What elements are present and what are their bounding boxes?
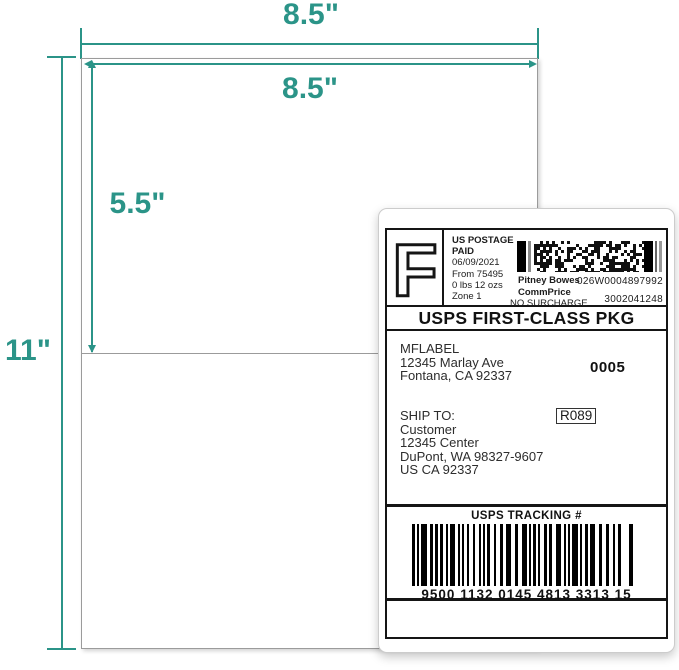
sheet-width-dimension-label: 8.5" xyxy=(256,0,366,30)
label-width-dimension-line xyxy=(86,63,533,65)
route-code-badge: R089 xyxy=(556,408,596,424)
sheet-width-right-tick xyxy=(537,28,539,59)
tracking-header: USPS TRACKING # xyxy=(387,510,666,522)
shipping-label-frame: F US POSTAGE PAID 06/09/2021 From 75495 … xyxy=(385,228,668,639)
carrier-name: Pitney Bowes xyxy=(518,275,580,286)
label-height-dimension-line xyxy=(91,62,93,352)
postage-weight: 0 lbs 12 ozs xyxy=(452,280,514,291)
ship-to-label: SHIP TO: xyxy=(400,409,543,423)
postage-line1: US POSTAGE xyxy=(452,235,514,246)
label-height-arrowhead-up xyxy=(88,60,96,68)
postage-class-box: F xyxy=(387,230,444,305)
sender-name: MFLABEL xyxy=(400,342,512,356)
recipient-address2: DuPont, WA 98327-9607 xyxy=(400,450,543,464)
sheet-height-dimension-label: 11" xyxy=(2,336,54,366)
meter-number: 026W0004897992 xyxy=(577,276,663,287)
account-number: 3002041248 xyxy=(604,294,663,305)
sender-address: MFLABEL 12345 Marlay Ave Fontana, CA 923… xyxy=(400,342,512,383)
postage-date: 06/09/2021 xyxy=(452,257,514,268)
sender-address1: 12345 Marlay Ave xyxy=(400,356,512,370)
postage-origin: From 75495 xyxy=(452,269,514,280)
sheet-width-left-tick xyxy=(80,28,82,59)
surcharge-note: NO SURCHARGE xyxy=(510,298,588,309)
tracking-section: USPS TRACKING # 9500 1132 0145 4813 3313… xyxy=(387,504,666,601)
sender-address2: Fontana, CA 92337 xyxy=(400,369,512,383)
postage-class-letter: F xyxy=(392,234,437,302)
label-footer-blank xyxy=(387,601,666,637)
postage-zone: Zone 1 xyxy=(452,291,514,302)
batch-number: 0005 xyxy=(590,361,625,375)
label-width-arrowhead-right xyxy=(529,60,537,68)
service-class-banner: USPS FIRST-CLASS PKG xyxy=(387,307,666,331)
meter-barcode xyxy=(517,241,664,272)
postage-details: US POSTAGE PAID 06/09/2021 From 75495 0 … xyxy=(452,235,514,302)
label-width-dimension-label: 8.5" xyxy=(250,74,370,104)
postage-class-letter-icon: F xyxy=(390,234,440,302)
postage-line2: PAID xyxy=(452,246,514,257)
recipient-address1: 12345 Center xyxy=(400,436,543,450)
product-image-canvas: 8.5" 11" 8.5" 5.5" F xyxy=(0,0,679,670)
recipient-name: Customer xyxy=(400,423,543,437)
tracking-barcode xyxy=(412,524,633,586)
sheet-width-dimension-line xyxy=(81,43,539,45)
shipping-label-card: F US POSTAGE PAID 06/09/2021 From 75495 … xyxy=(378,208,675,653)
sheet-height-bottom-tick xyxy=(47,648,76,650)
recipient-address3: US CA 92337 xyxy=(400,463,543,477)
label-height-dimension-label: 5.5" xyxy=(95,189,180,219)
rate-tier: CommPrice xyxy=(518,287,571,298)
postage-info: US POSTAGE PAID 06/09/2021 From 75495 0 … xyxy=(444,230,666,305)
tracking-number: 9500 1132 0145 4813 3313 15 xyxy=(387,587,666,602)
postage-section: F US POSTAGE PAID 06/09/2021 From 75495 … xyxy=(387,230,666,307)
sheet-height-dimension-line xyxy=(61,57,63,649)
sheet-height-top-tick xyxy=(47,56,76,58)
address-section: MFLABEL 12345 Marlay Ave Fontana, CA 923… xyxy=(387,331,666,504)
recipient-address: SHIP TO: Customer 12345 Center DuPont, W… xyxy=(400,409,543,477)
label-height-arrowhead-down xyxy=(88,345,96,353)
